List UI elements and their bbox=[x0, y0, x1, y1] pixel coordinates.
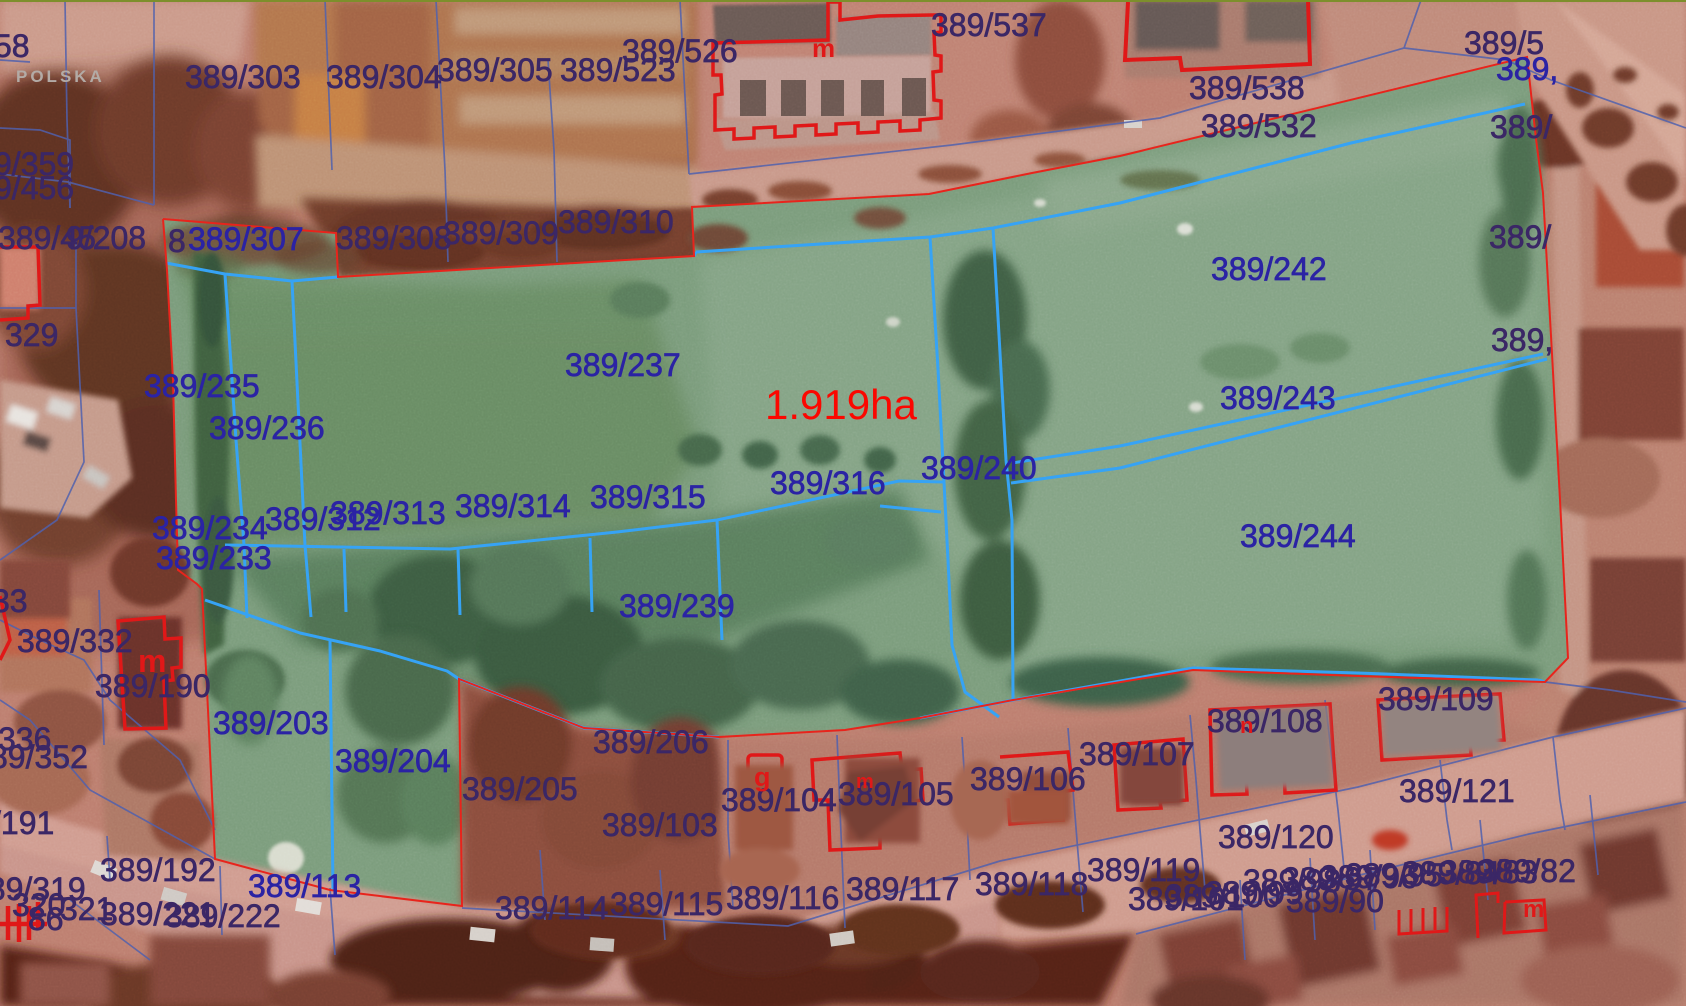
svg-text:389/314: 389/314 bbox=[455, 488, 571, 524]
svg-text:389/107: 389/107 bbox=[1079, 736, 1195, 772]
svg-text:389/526: 389/526 bbox=[622, 33, 738, 69]
svg-text:389/205: 389/205 bbox=[462, 771, 578, 807]
svg-text:389/240: 389/240 bbox=[921, 450, 1037, 486]
svg-text:389/235: 389/235 bbox=[144, 368, 260, 404]
svg-text:389/115: 389/115 bbox=[610, 886, 723, 922]
svg-text:58: 58 bbox=[0, 28, 30, 64]
svg-text:389/233: 389/233 bbox=[156, 540, 272, 576]
svg-text:389/114: 389/114 bbox=[495, 890, 608, 926]
svg-text:389/310: 389/310 bbox=[558, 204, 674, 240]
svg-text:389/309: 389/309 bbox=[443, 215, 559, 251]
svg-text:86: 86 bbox=[28, 901, 64, 937]
svg-text:389/: 389/ bbox=[1489, 219, 1551, 255]
svg-text:g: g bbox=[754, 762, 771, 792]
svg-text:389/: 389/ bbox=[1490, 109, 1552, 145]
svg-text:389/244: 389/244 bbox=[1240, 518, 1356, 554]
svg-text:389/106: 389/106 bbox=[970, 761, 1086, 797]
svg-text:389/307: 389/307 bbox=[188, 221, 304, 257]
svg-text:389/237: 389/237 bbox=[565, 347, 681, 383]
svg-text:m: m bbox=[812, 33, 835, 63]
svg-text:389/116: 389/116 bbox=[726, 880, 839, 916]
svg-text:33: 33 bbox=[0, 583, 28, 619]
svg-text:/191: /191 bbox=[0, 805, 54, 841]
svg-text:389/192: 389/192 bbox=[100, 852, 216, 888]
svg-text:389/538: 389/538 bbox=[1189, 70, 1305, 106]
svg-text:389/109: 389/109 bbox=[1378, 681, 1494, 717]
svg-text:389/203: 389/203 bbox=[213, 705, 329, 741]
svg-text:m: m bbox=[856, 771, 874, 793]
svg-text:389/108: 389/108 bbox=[1207, 703, 1323, 739]
svg-text:389,: 389, bbox=[1491, 322, 1553, 358]
svg-text:389/236: 389/236 bbox=[209, 410, 325, 446]
svg-text:389/305: 389/305 bbox=[437, 52, 553, 88]
svg-text:389/103: 389/103 bbox=[602, 807, 718, 843]
svg-text:389/222: 389/222 bbox=[165, 898, 281, 934]
svg-text:389/243: 389/243 bbox=[1220, 380, 1336, 416]
svg-text:389/316: 389/316 bbox=[770, 465, 886, 501]
svg-text:1.919ha: 1.919ha bbox=[765, 381, 917, 428]
svg-text:389/308: 389/308 bbox=[336, 220, 452, 256]
svg-text:89/352: 89/352 bbox=[0, 739, 88, 775]
svg-text:n: n bbox=[1240, 713, 1253, 738]
svg-text:389/118: 389/118 bbox=[975, 866, 1088, 902]
svg-text:389/82: 389/82 bbox=[1478, 853, 1576, 889]
svg-text:389/532: 389/532 bbox=[1201, 108, 1317, 144]
svg-text:389,: 389, bbox=[1496, 51, 1558, 87]
svg-text:389/332: 389/332 bbox=[17, 623, 133, 659]
svg-text:389/104: 389/104 bbox=[721, 782, 837, 818]
svg-text:389/303: 389/303 bbox=[185, 59, 301, 95]
svg-text:389/120: 389/120 bbox=[1218, 819, 1334, 855]
svg-text:POLSKA: POLSKA bbox=[16, 67, 105, 86]
svg-text:389/315: 389/315 bbox=[590, 479, 706, 515]
svg-text:389/242: 389/242 bbox=[1211, 251, 1327, 287]
svg-text:329: 329 bbox=[5, 317, 58, 353]
svg-text:9/208: 9/208 bbox=[66, 220, 146, 256]
svg-text:389/206: 389/206 bbox=[593, 724, 709, 760]
svg-text:m: m bbox=[138, 643, 166, 679]
svg-text:389/121: 389/121 bbox=[1399, 773, 1515, 809]
svg-text:9/456: 9/456 bbox=[0, 170, 74, 206]
svg-text:389/537: 389/537 bbox=[931, 7, 1047, 43]
svg-text:389/204: 389/204 bbox=[335, 743, 451, 779]
svg-text:m: m bbox=[1523, 896, 1544, 923]
svg-text:389/117: 389/117 bbox=[846, 871, 959, 907]
svg-text:389/304: 389/304 bbox=[326, 59, 442, 95]
svg-text:389/239: 389/239 bbox=[619, 588, 735, 624]
svg-text:8: 8 bbox=[168, 223, 186, 259]
svg-text:389/313: 389/313 bbox=[330, 495, 446, 531]
